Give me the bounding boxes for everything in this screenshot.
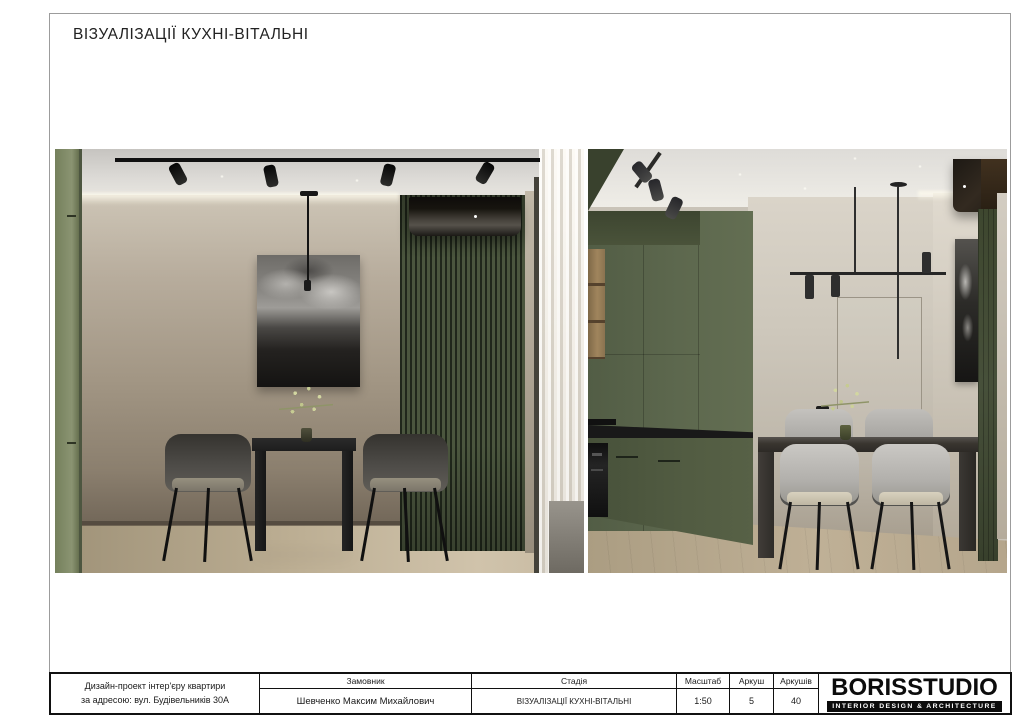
ceiling-spot-light [853,157,857,160]
project-description: Дизайн-проект інтер'єру квартири за адре… [51,674,259,713]
studio-logo-tagline: INTERIOR DESIGN & ARCHITECTURE [827,701,1001,712]
field-label-sheet: Аркуш [729,674,773,689]
chair-leg [203,488,210,562]
vase [301,428,312,442]
window-sill-panel [549,501,584,573]
cooktop [588,419,616,425]
field-value-scale: 1:50 [676,689,729,713]
chair-leg [403,488,410,562]
field-value-sheets: 40 [773,689,818,713]
ac-led [474,215,477,218]
ac-unit [409,197,521,236]
chair-leg [778,502,792,570]
open-wood-shelf [588,249,605,359]
wall-edge-strip [997,193,1007,539]
cabinet-handle [616,456,638,458]
ceiling-spot-light [220,175,224,178]
plant-sprigs [279,384,333,430]
ceiling-spot-light [918,165,922,168]
pendant-cylinder [922,252,931,273]
render-kitchen [588,149,1007,573]
field-label-stage: Стадія [471,674,676,689]
field-label-client: Замовник [259,674,471,689]
wall-pillar [525,191,534,553]
dining-chair [872,444,950,573]
chair-leg [846,502,860,570]
green-cabinet [55,149,82,573]
track-light-rail [115,158,540,162]
pendant-rod [854,187,856,273]
chair-leg [910,502,915,570]
vase [840,425,851,440]
ceiling-spot-light [738,173,742,176]
pendant-fixture [304,280,311,291]
drawing-sheet: ВІЗУАЛІЗАЦІЇ КУХНІ-ВІТАЛЬНІ [0,0,1024,724]
project-description-line2: за адресою: вул. Будівельників 30А [81,694,229,707]
field-label-sheets: Аркушів [773,674,818,689]
oven-display [592,453,602,456]
chair-leg [162,488,178,561]
studio-logo-brand: BORISSTUDIO [831,676,998,700]
field-value-sheet: 5 [729,689,773,713]
pendant-rod [307,195,309,284]
table-leg [959,452,976,551]
dining-chair [780,444,859,573]
chair-leg [937,502,951,570]
table-leg [255,451,266,551]
oven-handle [591,469,603,471]
dining-chair [363,434,448,566]
chair-leg [433,488,449,561]
field-value-client: Шевченко Максим Михайлович [259,689,471,713]
cabinet-soffit [588,211,700,245]
ceiling-spot-light [803,187,807,190]
chair-leg [816,502,821,570]
pendant-canopy [300,191,318,196]
plant-sprigs [821,381,869,427]
cabinet-handle [67,215,76,217]
pendant-cylinder [805,275,814,299]
cabinet-handle [658,460,680,462]
slat-panel-edge [978,209,998,561]
chair-leg [237,488,253,561]
chair-leg [870,502,884,570]
ceiling-spot-light [355,179,359,182]
cabinet-handle [67,442,76,444]
table-leg [342,451,353,551]
chair-leg [360,488,376,561]
field-value-stage: ВІЗУАЛІЗАЦІЇ КУХНІ-ВІТАЛЬНІ [471,689,676,713]
field-label-scale: Масштаб [676,674,729,689]
artwork-portrait [955,239,978,382]
dining-chair [165,434,251,566]
title-block: Дизайн-проект інтер'єру квартири за адре… [49,672,1012,715]
cove-light-glow [79,193,399,205]
ac-led [963,185,966,188]
studio-logo: BORISSTUDIO INTERIOR DESIGN & ARCHITECTU… [818,674,1010,713]
render-dining-area [55,149,584,573]
pendant-cylinder [831,275,840,297]
project-description-line1: Дизайн-проект інтер'єру квартири [85,680,226,693]
table-leg [758,452,774,558]
oven [588,443,608,517]
page-title: ВІЗУАЛІЗАЦІЇ КУХНІ-ВІТАЛЬНІ [73,26,309,44]
